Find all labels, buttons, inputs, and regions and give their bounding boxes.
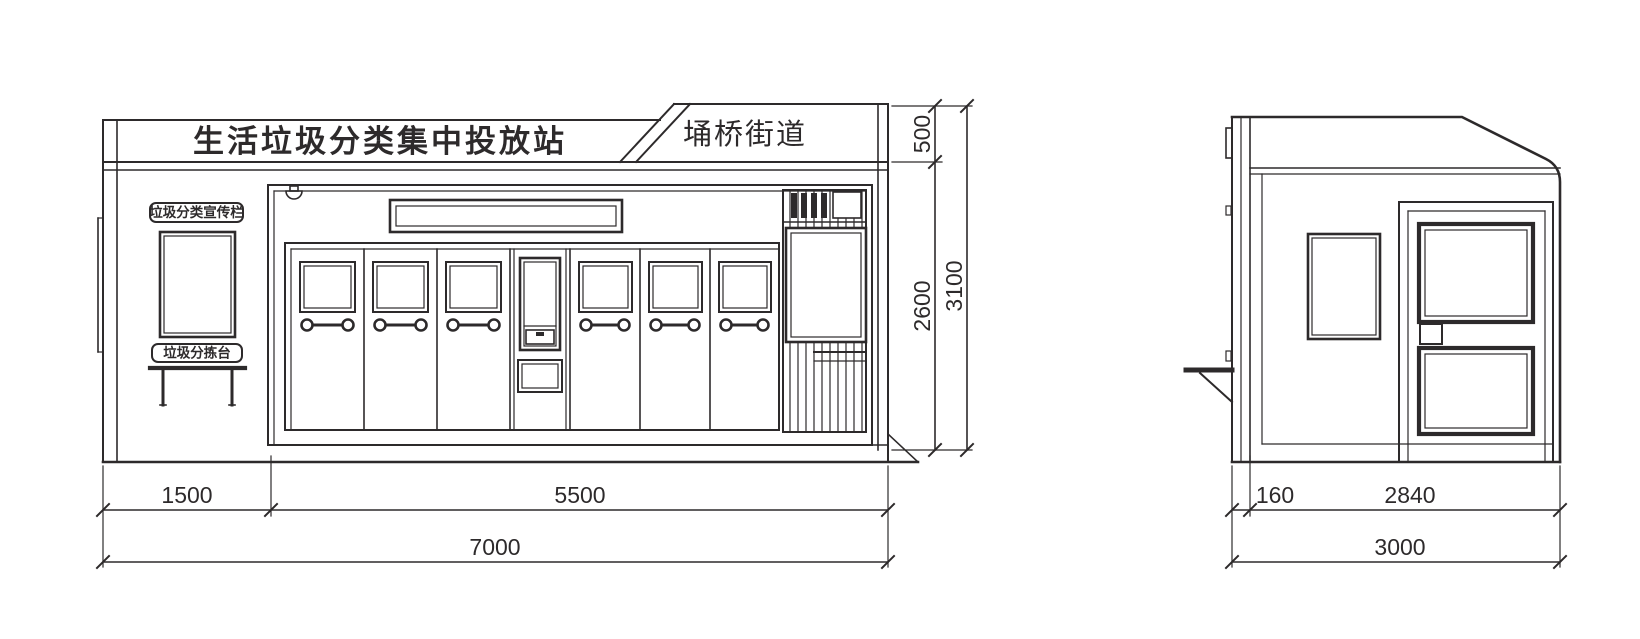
- district-sign-text: 埇桥街道: [683, 118, 807, 151]
- side-elevation: 160 2840 3000: [1186, 117, 1566, 568]
- fascia-latch-mark: [1226, 206, 1231, 215]
- front-height-dimensions: 500 2600 3100: [892, 100, 973, 456]
- dim-body-height: 2600: [909, 280, 935, 331]
- console-hatch: [518, 360, 562, 392]
- side-window: [1308, 234, 1380, 339]
- publicity-board-label-text: 垃圾分类宣传栏: [149, 204, 244, 220]
- door-glass-bottom: [1419, 348, 1533, 434]
- locker-door: [300, 262, 355, 331]
- locker-door: [373, 262, 428, 331]
- elevation-drawing: 生活垃圾分类集中投放站 埇桥街道 垃圾分类宣传栏 垃圾分拣台: [0, 0, 1640, 639]
- locker-door: [649, 262, 702, 331]
- publicity-board: [160, 232, 235, 337]
- dim-body-depth: 2840: [1384, 482, 1435, 508]
- front-elevation: 生活垃圾分类集中投放站 埇桥街道 垃圾分类宣传栏 垃圾分拣台: [97, 100, 973, 568]
- locker-door: [579, 262, 632, 331]
- locker-door: [446, 262, 501, 331]
- sorting-table: [150, 368, 245, 405]
- door-glass-top: [1419, 224, 1533, 322]
- smart-console: [510, 249, 570, 430]
- fascia-latch-mark: [1226, 351, 1231, 361]
- side-door: [1399, 202, 1553, 462]
- dim-total-depth: 3000: [1374, 534, 1425, 560]
- publicity-board-label: 垃圾分类宣传栏: [149, 203, 244, 222]
- door-handle-box: [1420, 324, 1442, 344]
- locker-door: [719, 262, 771, 331]
- dim-total-width: 7000: [469, 534, 520, 560]
- station-title-text: 生活垃圾分类集中投放站: [193, 124, 567, 159]
- front-width-dimensions: 1500 5500 7000: [97, 456, 894, 568]
- slat-panel: [783, 190, 866, 432]
- side-shelf: [1186, 370, 1232, 402]
- sorting-table-label: 垃圾分拣台: [152, 344, 242, 362]
- dim-fascia-depth: 160: [1256, 482, 1294, 508]
- side-depth-dimensions: 160 2840 3000: [1226, 456, 1566, 568]
- light-strip: [390, 200, 622, 232]
- side-outline: [1226, 117, 1560, 462]
- drawing-canvas: 生活垃圾分类集中投放站 埇桥街道 垃圾分类宣传栏 垃圾分拣台: [0, 0, 1640, 639]
- front-signboard: 生活垃圾分类集中投放站 埇桥街道: [103, 104, 888, 170]
- dim-band-height: 500: [909, 115, 935, 153]
- dim-left-bay: 1500: [161, 482, 212, 508]
- billboard: [786, 228, 866, 342]
- dim-center-bay: 5500: [554, 482, 605, 508]
- sorting-table-label-text: 垃圾分拣台: [163, 345, 231, 361]
- camera-dome-icon: [286, 186, 302, 199]
- locker-doors: [285, 243, 779, 430]
- dim-total-height: 3100: [941, 260, 967, 311]
